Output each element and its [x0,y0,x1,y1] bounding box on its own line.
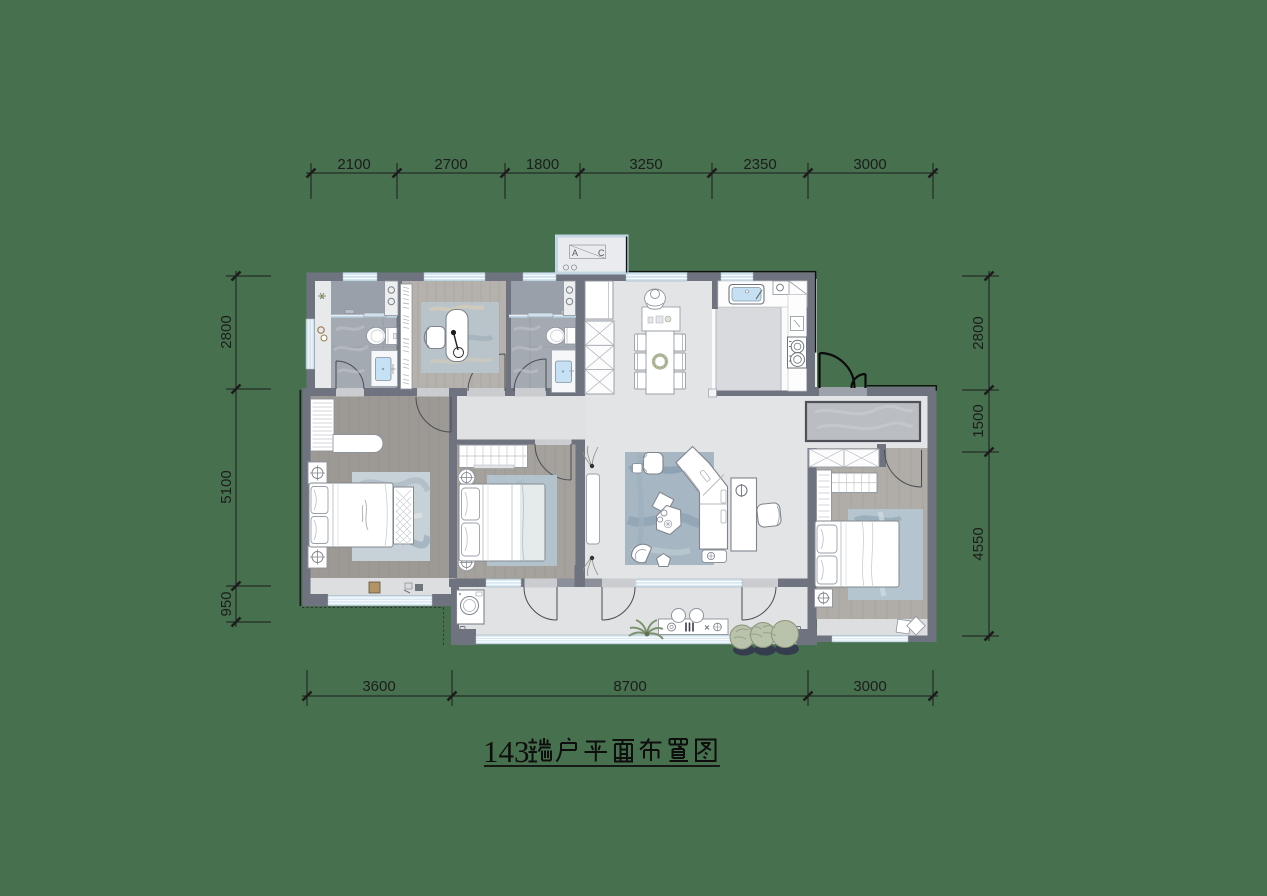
svg-text:3600: 3600 [362,678,395,695]
svg-text:1800: 1800 [526,156,559,173]
svg-text:8700: 8700 [613,678,646,695]
svg-text:3250: 3250 [629,156,662,173]
svg-text:2800: 2800 [218,315,235,348]
svg-text:A: A [572,248,578,258]
svg-text:3000: 3000 [853,678,886,695]
svg-text:4550: 4550 [970,527,987,560]
svg-text:2700: 2700 [434,156,467,173]
svg-text:950: 950 [218,591,235,616]
svg-text:C: C [598,248,605,258]
svg-text:2800: 2800 [970,316,987,349]
svg-text:3000: 3000 [853,156,886,173]
svg-text:2350: 2350 [743,156,776,173]
svg-text:1500: 1500 [970,404,987,437]
svg-text:5100: 5100 [218,470,235,503]
svg-text:143: 143 [483,734,530,769]
svg-text:2100: 2100 [337,156,370,173]
